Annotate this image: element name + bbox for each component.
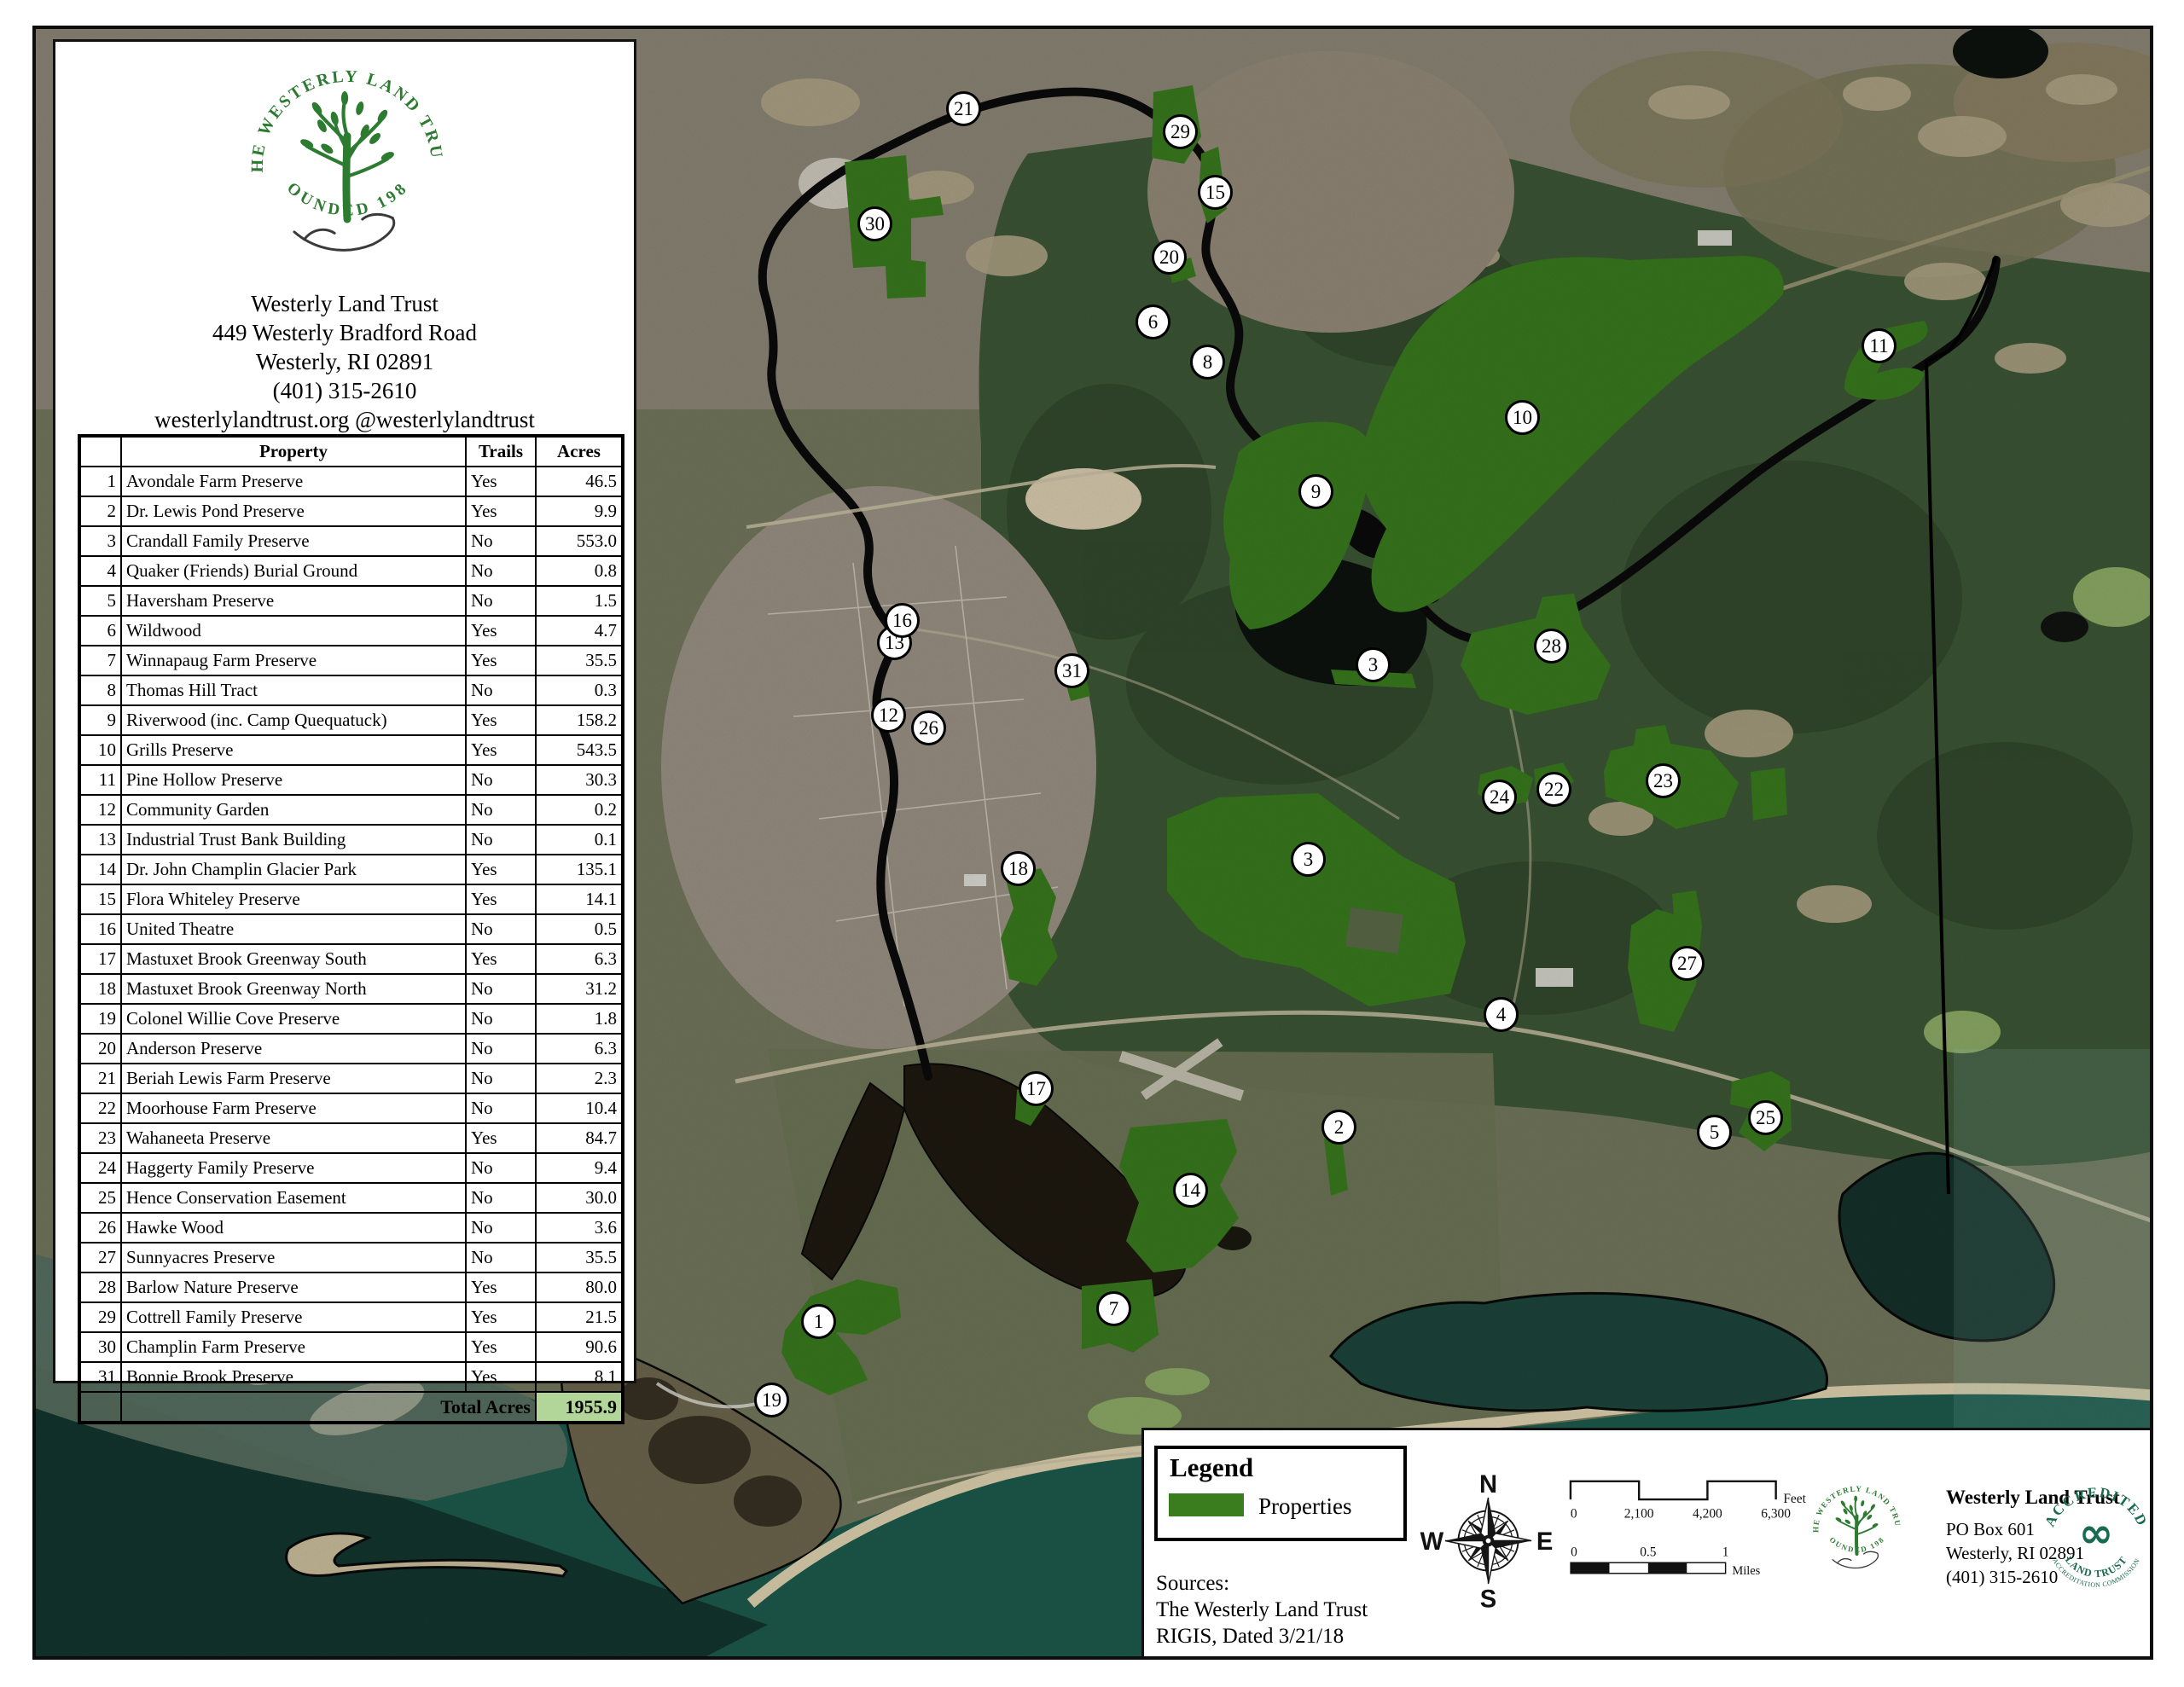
map-marker-6: 6 (1136, 304, 1170, 339)
map-marker-19: 19 (754, 1383, 789, 1417)
table-cell: 19 (79, 1004, 121, 1034)
table-cell: Champlin Farm Preserve (121, 1332, 466, 1362)
table-cell: 9.4 (536, 1153, 623, 1183)
table-cell: Colonel Willie Cove Preserve (121, 1004, 466, 1034)
table-cell: 3.6 (536, 1213, 623, 1243)
table-cell: 10.4 (536, 1093, 623, 1123)
table-cell: No (466, 1034, 536, 1064)
table-cell: Anderson Preserve (121, 1034, 466, 1064)
table-cell: No (466, 1183, 536, 1213)
table-row: 14Dr. John Champlin Glacier ParkYes135.1 (79, 855, 623, 884)
table-cell: 7 (79, 646, 121, 675)
scale-bar-feet: 0 2,100 4,200 6,300 Feet (1569, 1475, 1816, 1528)
seal-infinity-icon: ∞ (2079, 1510, 2113, 1557)
legend-item-label: Properties (1258, 1493, 1351, 1520)
table-row: 7Winnapaug Farm PreserveYes35.5 (79, 646, 623, 675)
legend-panel: Legend Properties Sources: The Westerly … (1141, 1428, 2153, 1660)
map-marker-27: 27 (1670, 946, 1705, 981)
table-cell: 4 (79, 556, 121, 586)
table-row: 10Grills PreserveYes543.5 (79, 735, 623, 765)
table-cell: No (466, 914, 536, 944)
map-marker-15: 15 (1198, 175, 1233, 210)
table-cell: 14 (79, 855, 121, 884)
table-cell: Yes (466, 735, 536, 765)
map-marker-11: 11 (1862, 328, 1896, 363)
wlt-logo-large (221, 45, 473, 285)
map-marker-2: 2 (1321, 1110, 1356, 1145)
table-cell: 9.9 (536, 496, 623, 526)
table-cell: 25 (79, 1183, 121, 1213)
table-row: 23Wahaneeta PreserveYes84.7 (79, 1123, 623, 1153)
table-cell: No (466, 586, 536, 616)
table-cell: 46.5 (536, 467, 623, 496)
table-cell: 13 (79, 825, 121, 855)
table-cell: Moorhouse Farm Preserve (121, 1093, 466, 1123)
table-cell: 6.3 (536, 1034, 623, 1064)
table-cell: 3 (79, 526, 121, 556)
table-row: 22Moorhouse Farm PreserveNo10.4 (79, 1093, 623, 1123)
table-cell: 17 (79, 944, 121, 974)
table-cell: 0.1 (536, 825, 623, 855)
table-row: 1Avondale Farm PreserveYes46.5 (79, 467, 623, 496)
map-marker-26: 26 (911, 710, 946, 745)
table-cell: 22 (79, 1093, 121, 1123)
table-cell: 84.7 (536, 1123, 623, 1153)
table-header-row: Property Trails Acres (79, 436, 623, 467)
table-cell: United Theatre (121, 914, 466, 944)
table-cell: 24 (79, 1153, 121, 1183)
table-cell: No (466, 765, 536, 795)
miles-tick-0: 0 (1571, 1545, 1577, 1560)
table-cell: 29 (79, 1302, 121, 1332)
info-panel: Westerly Land Trust 449 Westerly Bradfor… (53, 39, 636, 1383)
wlt-logo-small (1799, 1475, 1914, 1584)
miles-tick-1: 0.5 (1640, 1545, 1657, 1560)
table-cell: Yes (466, 855, 536, 884)
scale-bar-miles: 0 0.5 1 Miles (1569, 1545, 1816, 1592)
table-row: 18Mastuxet Brook Greenway NorthNo31.2 (79, 974, 623, 1004)
table-cell: 0.3 (536, 675, 623, 705)
total-row: Total Acres 1955.9 (79, 1392, 623, 1423)
table-cell: Winnapaug Farm Preserve (121, 646, 466, 675)
map-marker-1: 1 (801, 1304, 836, 1339)
table-cell: 90.6 (536, 1332, 623, 1362)
table-cell: Bonnie Brook Preserve (121, 1362, 466, 1392)
table-row: 2Dr. Lewis Pond PreserveYes9.9 (79, 496, 623, 526)
header-number (79, 436, 121, 467)
map-marker-14: 14 (1173, 1173, 1208, 1208)
address-line: 449 Westerly Bradford Road (55, 318, 634, 347)
table-cell: 2 (79, 496, 121, 526)
table-cell: Avondale Farm Preserve (121, 467, 466, 496)
map-marker-10: 10 (1505, 400, 1540, 435)
table-cell: No (466, 1004, 536, 1034)
table-cell: Flora Whiteley Preserve (121, 884, 466, 914)
compass-e: E (1536, 1528, 1553, 1556)
table-row: 28Barlow Nature PreserveYes80.0 (79, 1272, 623, 1302)
table-cell: 26 (79, 1213, 121, 1243)
table-cell: Yes (466, 467, 536, 496)
total-acres-value: 1955.9 (536, 1392, 623, 1423)
map-marker-29: 29 (1163, 114, 1198, 149)
feet-tick-0: 0 (1571, 1506, 1577, 1521)
table-cell: 1.5 (536, 586, 623, 616)
table-cell: 21.5 (536, 1302, 623, 1332)
table-cell: 9 (79, 705, 121, 735)
sources-line: RIGIS, Dated 3/21/18 (1156, 1623, 1368, 1649)
table-cell: Grills Preserve (121, 735, 466, 765)
table-row: 8Thomas Hill TractNo0.3 (79, 675, 623, 705)
table-cell: No (466, 1064, 536, 1093)
feet-tick-1: 2,100 (1624, 1506, 1654, 1521)
table-cell: 20 (79, 1034, 121, 1064)
table-cell: 21 (79, 1064, 121, 1093)
address-block: Westerly Land Trust 449 Westerly Bradfor… (55, 289, 634, 434)
org-name-line: Westerly Land Trust (55, 289, 634, 318)
table-cell: 5 (79, 586, 121, 616)
map-marker-7: 7 (1096, 1291, 1131, 1326)
table-row: 5Haversham PreserveNo1.5 (79, 586, 623, 616)
phone-line: (401) 315-2610 (55, 376, 634, 405)
table-row: 4Quaker (Friends) Burial GroundNo0.8 (79, 556, 623, 586)
sources-line: Sources: (1156, 1570, 1368, 1597)
property-table: Property Trails Acres 1Avondale Farm Pre… (78, 434, 624, 1424)
table-row: 24Haggerty Family PreserveNo9.4 (79, 1153, 623, 1183)
table-cell: Wahaneeta Preserve (121, 1123, 466, 1153)
map-marker-16: 16 (885, 603, 920, 638)
table-cell: Yes (466, 884, 536, 914)
table-cell: 4.7 (536, 616, 623, 646)
table-cell: 16 (79, 914, 121, 944)
table-cell: Yes (466, 616, 536, 646)
table-cell: No (466, 556, 536, 586)
table-row: 20Anderson PreserveNo6.3 (79, 1034, 623, 1064)
table-row: 13Industrial Trust Bank BuildingNo0.1 (79, 825, 623, 855)
table-row: 25Hence Conservation EasementNo30.0 (79, 1183, 623, 1213)
table-cell: Yes (466, 1332, 536, 1362)
table-row: 15Flora Whiteley PreserveYes14.1 (79, 884, 623, 914)
table-cell: No (466, 1213, 536, 1243)
miles-tick-2: 1 (1722, 1545, 1729, 1560)
map-marker-12: 12 (871, 698, 906, 733)
table-row: 17Mastuxet Brook Greenway SouthYes6.3 (79, 944, 623, 974)
table-cell: 543.5 (536, 735, 623, 765)
table-cell: Yes (466, 1362, 536, 1392)
table-cell: 2.3 (536, 1064, 623, 1093)
table-cell: 35.5 (536, 646, 623, 675)
table-cell: 80.0 (536, 1272, 623, 1302)
table-row: 16United TheatreNo0.5 (79, 914, 623, 944)
table-cell: Community Garden (121, 795, 466, 825)
table-cell: No (466, 1093, 536, 1123)
table-row: 9Riverwood (inc. Camp Quequatuck)Yes158.… (79, 705, 623, 735)
map-marker-25: 25 (1748, 1100, 1783, 1135)
table-cell: 6 (79, 616, 121, 646)
map-marker-28: 28 (1534, 629, 1569, 664)
table-cell: Thomas Hill Tract (121, 675, 466, 705)
table-row: 27Sunnyacres PreserveNo35.5 (79, 1243, 623, 1272)
table-cell: No (466, 1243, 536, 1272)
table-cell: Mastuxet Brook Greenway South (121, 944, 466, 974)
total-label: Total Acres (121, 1392, 536, 1423)
table-row: 21Beriah Lewis Farm PreserveNo2.3 (79, 1064, 623, 1093)
table-cell: Beriah Lewis Farm Preserve (121, 1064, 466, 1093)
map-marker-30: 30 (857, 206, 892, 241)
table-cell: Yes (466, 1302, 536, 1332)
table-cell: 23 (79, 1123, 121, 1153)
header-trails: Trails (466, 436, 536, 467)
table-cell: Industrial Trust Bank Building (121, 825, 466, 855)
table-cell: 8 (79, 675, 121, 705)
legend-box: Legend Properties (1154, 1446, 1407, 1541)
map-marker-24: 24 (1482, 780, 1517, 815)
properties-swatch (1169, 1493, 1244, 1516)
table-cell: 28 (79, 1272, 121, 1302)
table-cell: 35.5 (536, 1243, 623, 1272)
table-cell: 135.1 (536, 855, 623, 884)
header-property: Property (121, 436, 466, 467)
compass-s: S (1480, 1586, 1496, 1613)
table-row: 19Colonel Willie Cove PreserveNo1.8 (79, 1004, 623, 1034)
map-marker-4: 4 (1484, 997, 1519, 1032)
table-cell: 1 (79, 467, 121, 496)
address-line: Westerly, RI 02891 (55, 347, 634, 376)
table-cell: 31.2 (536, 974, 623, 1004)
table-row: 6WildwoodYes4.7 (79, 616, 623, 646)
table-cell: Sunnyacres Preserve (121, 1243, 466, 1272)
table-cell: 158.2 (536, 705, 623, 735)
map-marker-3: 3 (1356, 647, 1391, 682)
table-row: 26Hawke WoodNo3.6 (79, 1213, 623, 1243)
table-row: 29Cottrell Family PreserveYes21.5 (79, 1302, 623, 1332)
table-row: 30Champlin Farm PreserveYes90.6 (79, 1332, 623, 1362)
map-marker-20: 20 (1152, 240, 1187, 275)
table-cell: Pine Hollow Preserve (121, 765, 466, 795)
feet-tick-3: 6,300 (1761, 1506, 1791, 1521)
sources-block: Sources: The Westerly Land Trust RIGIS, … (1156, 1570, 1368, 1649)
table-cell: No (466, 526, 536, 556)
table-cell: No (466, 675, 536, 705)
table-cell: Yes (466, 944, 536, 974)
map-marker-18: 18 (1001, 851, 1036, 886)
total-empty-cell (79, 1392, 121, 1423)
map-marker-23: 23 (1646, 763, 1681, 798)
table-cell: 553.0 (536, 526, 623, 556)
compass-n: N (1479, 1471, 1497, 1499)
table-cell: 8.1 (536, 1362, 623, 1392)
table-cell: Mastuxet Brook Greenway North (121, 974, 466, 1004)
table-cell: Yes (466, 496, 536, 526)
table-cell: Crandall Family Preserve (121, 526, 466, 556)
table-cell: 31 (79, 1362, 121, 1392)
map-marker-21: 21 (946, 91, 981, 126)
table-row: 3Crandall Family PreserveNo553.0 (79, 526, 623, 556)
legend-title: Legend (1170, 1452, 1253, 1483)
table-cell: Quaker (Friends) Burial Ground (121, 556, 466, 586)
map-marker-31: 31 (1054, 653, 1089, 688)
map-marker-22: 22 (1536, 772, 1571, 807)
table-cell: 27 (79, 1243, 121, 1272)
header-acres: Acres (536, 436, 623, 467)
table-cell: 30.0 (536, 1183, 623, 1213)
table-cell: 30 (79, 1332, 121, 1362)
feet-tick-2: 4,200 (1693, 1506, 1722, 1521)
table-cell: Cottrell Family Preserve (121, 1302, 466, 1332)
table-row: 12Community GardenNo0.2 (79, 795, 623, 825)
table-cell: 10 (79, 735, 121, 765)
table-cell: Riverwood (inc. Camp Quequatuck) (121, 705, 466, 735)
table-cell: Yes (466, 1123, 536, 1153)
map-marker-8: 8 (1190, 345, 1225, 380)
table-cell: No (466, 1153, 536, 1183)
table-cell: 0.8 (536, 556, 623, 586)
table-cell: Hawke Wood (121, 1213, 466, 1243)
table-cell: Dr. Lewis Pond Preserve (121, 496, 466, 526)
table-cell: Yes (466, 646, 536, 675)
accredited-seal-icon: ACCREDITED ∞ LAND TRUST ACCREDITATION CO… (2036, 1478, 2156, 1597)
table-cell: 30.3 (536, 765, 623, 795)
table-cell: 0.5 (536, 914, 623, 944)
table-cell: 15 (79, 884, 121, 914)
table-row: 31Bonnie Brook PreserveYes8.1 (79, 1362, 623, 1392)
table-cell: Yes (466, 1272, 536, 1302)
map-marker-3: 3 (1291, 842, 1326, 877)
miles-unit: Miles (1732, 1564, 1760, 1578)
table-cell: 0.2 (536, 795, 623, 825)
table-cell: Hence Conservation Easement (121, 1183, 466, 1213)
table-cell: Haversham Preserve (121, 586, 466, 616)
compass-rose-icon: N E S W (1414, 1466, 1563, 1615)
table-row: 11Pine Hollow PreserveNo30.3 (79, 765, 623, 795)
table-cell: Yes (466, 705, 536, 735)
table-cell: 11 (79, 765, 121, 795)
table-cell: No (466, 825, 536, 855)
property-table-body: 1Avondale Farm PreserveYes46.52Dr. Lewis… (79, 467, 623, 1392)
table-cell: 1.8 (536, 1004, 623, 1034)
table-cell: Barlow Nature Preserve (121, 1272, 466, 1302)
table-cell: 12 (79, 795, 121, 825)
table-cell: 6.3 (536, 944, 623, 974)
compass-w: W (1420, 1528, 1444, 1556)
map-marker-17: 17 (1019, 1071, 1054, 1106)
table-cell: No (466, 974, 536, 1004)
table-cell: Haggerty Family Preserve (121, 1153, 466, 1183)
table-cell: Wildwood (121, 616, 466, 646)
map-marker-5: 5 (1697, 1115, 1732, 1150)
table-cell: 18 (79, 974, 121, 1004)
map-marker-9: 9 (1298, 474, 1333, 509)
table-cell: Dr. John Champlin Glacier Park (121, 855, 466, 884)
sources-line: The Westerly Land Trust (1156, 1597, 1368, 1623)
web-social-line: westerlylandtrust.org @westerlylandtrust (55, 405, 634, 434)
table-cell: 14.1 (536, 884, 623, 914)
table-cell: No (466, 795, 536, 825)
